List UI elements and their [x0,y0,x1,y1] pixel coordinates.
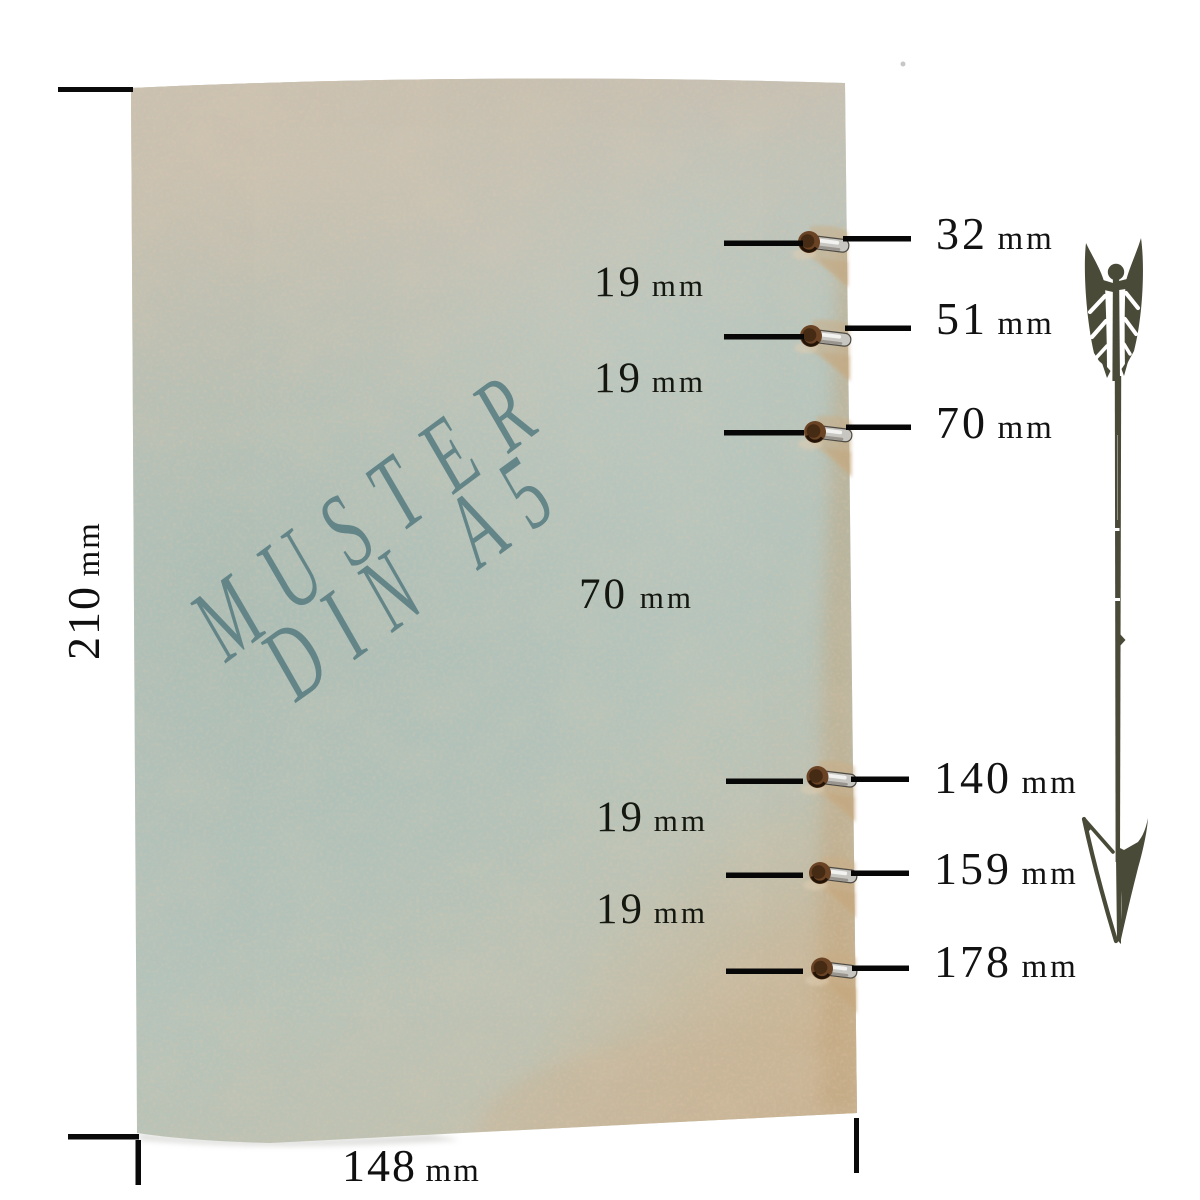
svg-text:140 mm: 140 mm [934,752,1079,803]
svg-text:159 mm: 159 mm [934,843,1079,894]
svg-text:178 mm: 178 mm [934,936,1079,987]
svg-text:32 mm: 32 mm [936,208,1055,259]
svg-text:210 mm: 210 mm [58,521,109,660]
svg-text:148 mm: 148 mm [342,1140,481,1191]
svg-text:70 mm: 70 mm [936,397,1055,448]
svg-text:51 mm: 51 mm [936,293,1055,344]
